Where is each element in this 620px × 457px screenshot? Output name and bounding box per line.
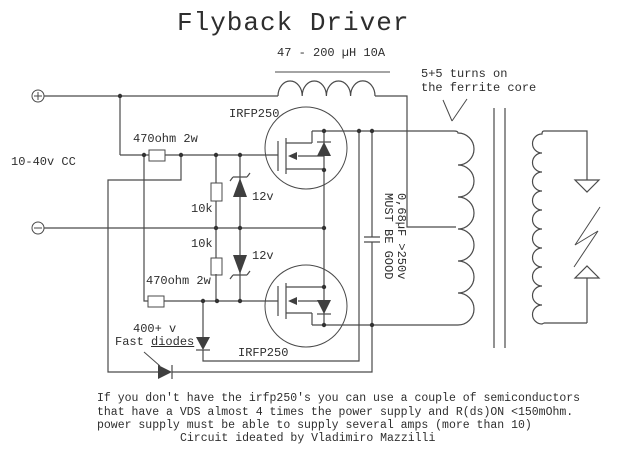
spark-gap	[574, 180, 600, 278]
turns-note-line2: the ferrite core	[421, 82, 536, 95]
fast-diode-horizontal	[158, 365, 172, 379]
capacitor-note: 0,68µF >250vMUST BE GOOD	[381, 193, 407, 343]
turns-note-line1: 5+5 turns on	[421, 68, 507, 81]
zener-top-label: 12v	[252, 191, 274, 204]
zener-bottom-label: 12v	[252, 250, 274, 263]
resistor-470-top	[149, 150, 165, 161]
zener-diode-top	[230, 173, 250, 197]
r10k-top-label: 10k	[191, 203, 213, 216]
resistor-10k-top	[211, 183, 222, 201]
transformer	[454, 108, 587, 348]
fast-diodes-prefix: Fast	[115, 335, 151, 349]
resistor-470-bottom	[148, 296, 164, 307]
capacitor-note-line2: MUST BE GOOD	[381, 193, 395, 279]
ferrite-core	[494, 108, 505, 348]
footer-line2: that have a VDS almost 4 times the power…	[97, 407, 573, 420]
mosfet-bottom-body-diode	[317, 300, 331, 314]
resistor-10k-bottom	[211, 258, 222, 275]
spark-gap-bottom-electrode	[575, 266, 599, 278]
spark-gap-top-electrode	[575, 180, 599, 192]
junction-dots	[118, 94, 374, 327]
secondary-winding	[533, 131, 545, 324]
mosfet-bottom-symbol	[265, 265, 347, 347]
flyback-driver-schematic: Flyback Driver 47 - 200 µH 10A 5+5 turns…	[0, 0, 620, 457]
footer-line3: power supply must be able to supply seve…	[97, 420, 532, 433]
mosfet-bottom-arrow	[288, 297, 297, 305]
page-title: Flyback Driver	[177, 9, 409, 38]
footer-credit: Circuit ideated by Vladimiro Mazzilli	[180, 433, 435, 446]
fast-diode-vertical	[196, 337, 210, 350]
mosfet-bottom-label: IRFP250	[238, 347, 288, 360]
supply-voltage-label: 10-40v CC	[11, 156, 76, 169]
resistor-bottom-label: 470ohm 2w	[146, 275, 211, 288]
capacitor-symbol	[364, 237, 380, 242]
fast-diodes-label: Fast diodes	[115, 336, 194, 349]
resistor-top-label: 470ohm 2w	[133, 133, 198, 146]
mosfet-top-body-diode	[317, 142, 331, 156]
capacitor-note-line1: 0,68µF >250v	[394, 193, 408, 279]
inductor-symbol	[275, 72, 390, 96]
minus-terminal	[32, 222, 44, 234]
inductor-label: 47 - 200 µH 10A	[277, 47, 385, 60]
lightning-bolt-icon	[574, 207, 600, 267]
schematic-canvas	[0, 0, 620, 457]
turns-note-arrow	[443, 99, 467, 121]
mosfet-top-arrow	[288, 152, 297, 160]
mosfet-top-label: IRFP250	[229, 108, 279, 121]
plus-terminal	[32, 90, 44, 102]
r10k-bottom-label: 10k	[191, 238, 213, 251]
primary-winding	[454, 131, 474, 325]
zener-diode-bottom	[230, 255, 250, 279]
footer-line1: If you don't have the irfp250's you can …	[97, 393, 580, 406]
fast-diodes-pointer-line	[144, 352, 160, 366]
fast-diodes-word: diodes	[151, 335, 194, 349]
